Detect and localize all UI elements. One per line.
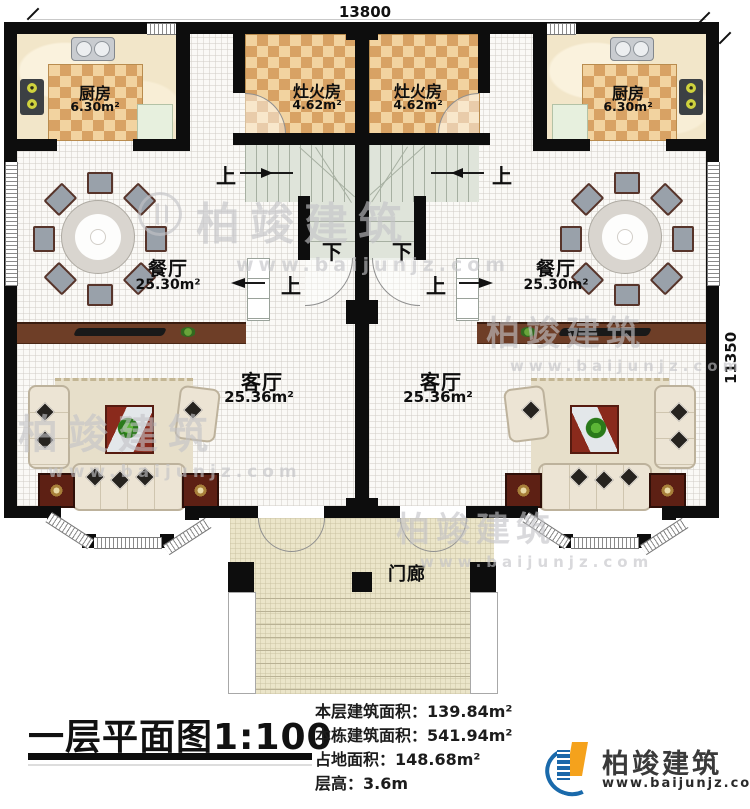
window-top-right [547, 23, 576, 35]
window-right-wall [707, 162, 720, 286]
stair-left-down-label: 下 [322, 236, 342, 265]
wall-bottom-right-a [466, 506, 525, 518]
wall-center-anchor-bottom [346, 498, 378, 518]
kitchen-left-bottom-wall-a [17, 139, 57, 151]
stat-building-area: 本栋建筑面积：541.94m² [315, 722, 512, 746]
wall-bottom-left-b [198, 506, 258, 518]
sofa-set-right [506, 375, 696, 515]
bay-left-window-front [94, 537, 162, 549]
kitchen-left-sink-icon [71, 37, 115, 61]
kitchen-right-area: 6.30m² [603, 99, 652, 114]
stove-room-left-area: 4.62m² [292, 97, 341, 112]
stair-right-up-label: 上 [492, 160, 512, 189]
brand-site: www.baijunjz.com [602, 776, 750, 791]
wall-center [355, 22, 369, 518]
hall-right-up-label: 上 [426, 270, 446, 299]
kitchen-right-fridge-icon [552, 104, 588, 140]
entry-door-gap-left [258, 507, 324, 518]
kitchen-right-bottom-wall-b [666, 139, 706, 151]
hall-left-arrow [231, 278, 245, 288]
stove-right-bottom-wall [369, 133, 490, 145]
wall-center-anchor-top [346, 22, 378, 40]
hall-right-arrow [479, 278, 493, 288]
bay-right-window-a [522, 512, 570, 549]
porch-column-right [470, 562, 496, 592]
dining-right-area: 25.30m² [523, 277, 588, 293]
hall-right-arrow-line [459, 282, 479, 284]
kitchen-right-stove-icon [679, 79, 703, 115]
porch-center-pier [352, 572, 372, 592]
stair-right-direction-arrow [451, 168, 463, 178]
tv-cabinet-right [477, 322, 706, 344]
stove-room-right-area: 4.62m² [393, 97, 442, 112]
hall-left-up-label: 上 [281, 270, 301, 299]
kitchen-left-stove-icon [20, 79, 44, 115]
sofa-set-left [28, 375, 218, 515]
porch-column-left [228, 562, 254, 592]
kitchen-right-bottom-wall-a [533, 139, 590, 151]
bay-right-stub4 [662, 506, 676, 520]
floor-plan-canvas: 13800 11350 厨房 6.30m² 厨房 6.30m² 灶火房 4.62… [0, 0, 750, 809]
living-right-area: 25.36m² [403, 388, 473, 406]
porch-pilaster-left [228, 592, 256, 694]
kitchen-left-wall [176, 22, 190, 151]
dining-table-right [578, 190, 672, 284]
stair-right-wall [414, 196, 426, 260]
stat-floor-area: 本层建筑面积：139.84m² [315, 698, 512, 722]
title-underline [28, 753, 312, 760]
entry-door-gap-right [400, 507, 466, 518]
wall-bottom-right-b [671, 506, 719, 518]
stove-right-wall-upper [478, 22, 490, 93]
bay-left-window-a [45, 512, 93, 549]
tv-cabinet-left [17, 322, 246, 344]
stat-floor-height: 层高：3.6m [315, 770, 408, 794]
bay-left-stub4 [185, 506, 199, 520]
entry-steps-right [456, 258, 479, 321]
wall-bottom-left-a [4, 506, 52, 518]
stair-left-wall [298, 196, 310, 260]
hall-left-arrow-line [245, 282, 265, 284]
stair-right-down-label: 下 [392, 236, 412, 265]
living-left-area: 25.36m² [224, 388, 294, 406]
kitchen-left-area: 6.30m² [70, 99, 119, 114]
dimension-tick-right [719, 32, 732, 45]
dining-table-left [51, 190, 145, 284]
stove-left-bottom-wall [233, 133, 355, 145]
window-top-left [147, 23, 176, 35]
stair-left-up-label: 上 [216, 160, 236, 189]
kitchen-left-fridge-icon [137, 104, 173, 140]
kitchen-right-wall [533, 22, 547, 151]
dimension-right: 11350 [722, 332, 740, 384]
dimension-top: 13800 [330, 3, 400, 21]
stat-footprint-area: 占地面积：148.68m² [315, 746, 480, 770]
bay-right-window-front [571, 537, 639, 549]
porch-name: 门廊 [388, 560, 426, 586]
entry-steps-left [247, 258, 270, 321]
kitchen-left-bottom-wall-b [133, 139, 190, 151]
stove-left-wall-upper [233, 22, 245, 93]
dining-left-area: 25.30m² [135, 277, 200, 293]
porch-pilaster-right [470, 592, 498, 694]
porch-steps [230, 598, 494, 694]
title-underline-shadow [28, 764, 312, 766]
window-left-wall [5, 162, 18, 286]
stair-left-direction-arrow [261, 168, 273, 178]
kitchen-right-sink-icon [610, 37, 654, 61]
wall-center-anchor-mid [346, 300, 378, 324]
